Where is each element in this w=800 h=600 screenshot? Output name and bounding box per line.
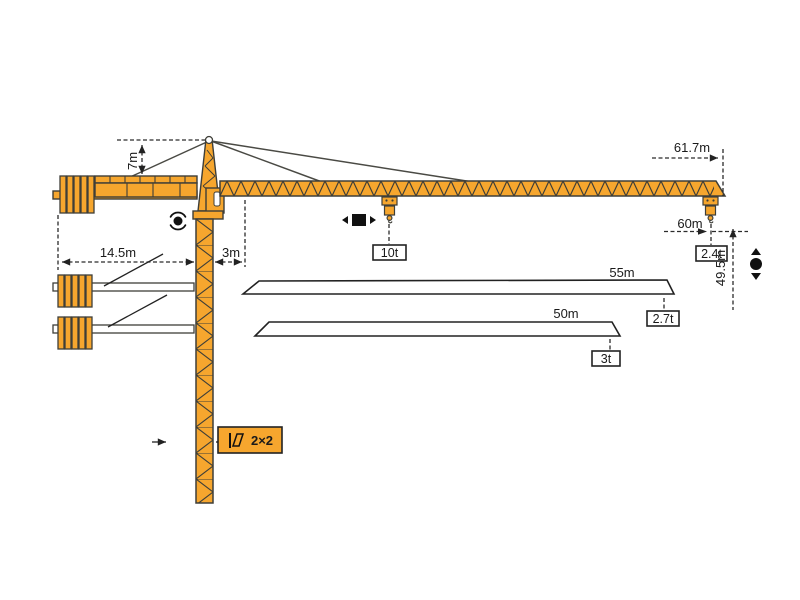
jib-option-55m: 55m 2.7t <box>243 265 679 326</box>
tip-hook-radius-label: 60m <box>677 216 702 231</box>
jib-option-50m-load-label: 3t <box>601 352 612 366</box>
jib-option-50m: 50m 3t <box>255 306 620 366</box>
tie-rod-left <box>128 141 209 178</box>
crane-diagram-canvas: 7m 14.5m 3m 61.7m 60m 2.4t 49.5m 10t <box>0 0 800 600</box>
jib <box>220 181 725 196</box>
counterjib-deck <box>95 183 197 197</box>
crane-diagram: 7m 14.5m 3m 61.7m 60m 2.4t 49.5m 10t <box>0 0 800 600</box>
trolley-travel-icon <box>342 214 376 226</box>
dim-apex-height: 7m <box>117 140 205 174</box>
apex-height-label: 7m <box>125 152 140 170</box>
max-radius-label: 61.7m <box>674 140 710 155</box>
tie-rod-right-short <box>211 141 322 182</box>
counterjib-radius-label: 14.5m <box>100 245 136 260</box>
cab-window <box>214 192 220 206</box>
slew-offset-label: 3m <box>222 245 240 260</box>
tower-section-callout: 2×2 <box>152 427 282 453</box>
jib-option-55m-length-label: 55m <box>609 265 634 280</box>
counterweight-slabs <box>60 176 94 213</box>
tie-rod-right-long <box>211 141 473 182</box>
dim-counterjib-radius: 14.5m <box>58 215 194 270</box>
jib-lattice <box>220 181 714 196</box>
hook-main <box>387 216 392 221</box>
tower-lattice <box>196 219 213 503</box>
load-box-max: 10t <box>373 224 406 260</box>
jib-option-50m-length-label: 50m <box>553 306 578 321</box>
leader-line-2 <box>108 295 167 327</box>
slewing-platform <box>193 211 223 219</box>
hoist-icon <box>750 248 762 280</box>
hook-tip <box>708 216 713 221</box>
jib-option-55m-load-label: 2.7t <box>653 312 674 326</box>
trolley-main <box>382 197 397 223</box>
tower-section-label: 2×2 <box>251 433 273 448</box>
trolley-tip <box>703 197 718 223</box>
max-load-label: 10t <box>381 246 399 260</box>
dim-hook-height: 49.5m <box>713 229 733 310</box>
hook-height-label: 49.5m <box>713 250 728 286</box>
apex-pulley <box>206 137 213 144</box>
slewing-icon <box>171 212 186 229</box>
dim-tip-hook-radius: 60m <box>664 216 748 245</box>
tower-mast <box>196 219 213 503</box>
